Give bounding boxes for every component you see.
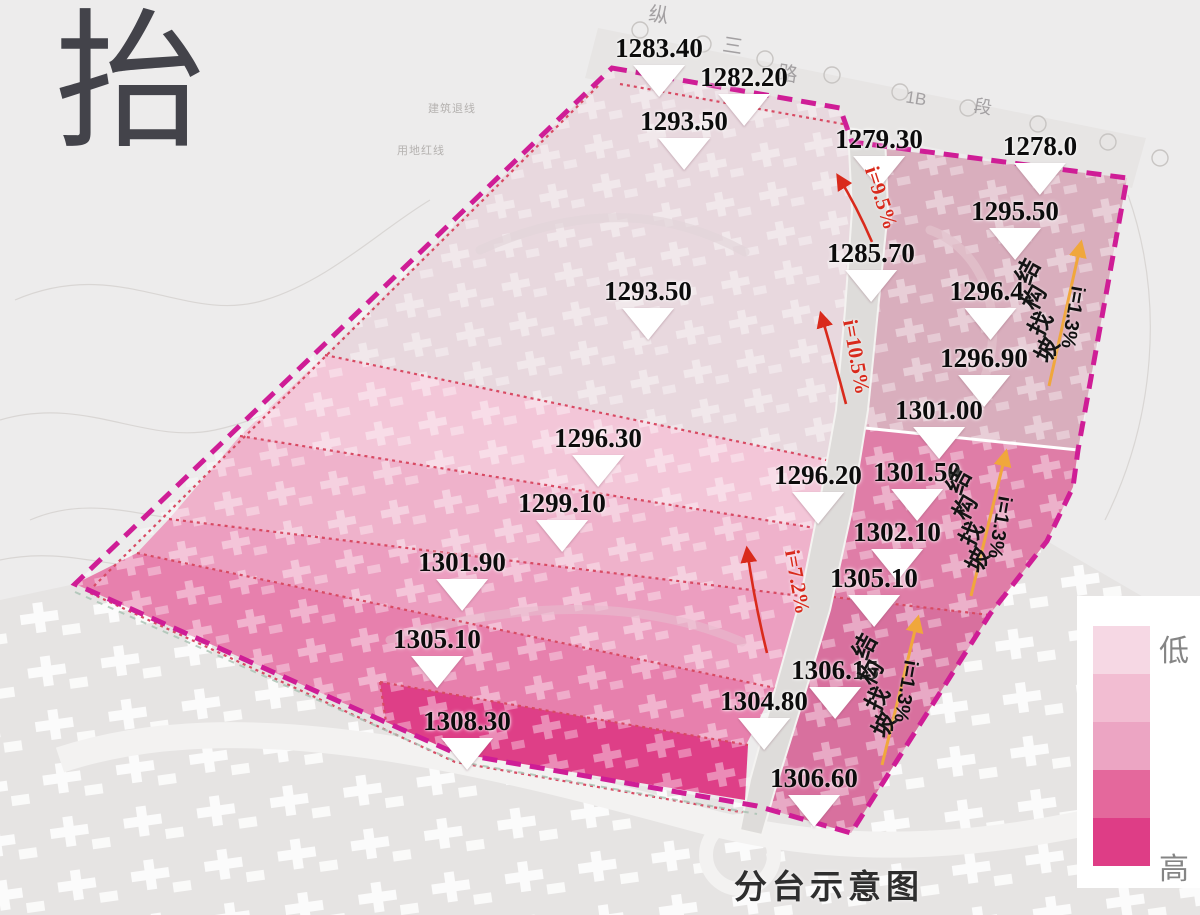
elevation-triangle-icon — [792, 492, 844, 524]
elevation-triangle-icon — [848, 595, 900, 627]
elevation-marker: 1305.10 — [393, 624, 481, 688]
elevation-marker: 1296.30 — [554, 423, 642, 487]
elevation-triangle-icon — [809, 687, 861, 719]
elevation-marker: 1306.60 — [770, 763, 858, 827]
elevation-marker: 1295.50 — [971, 196, 1059, 260]
diagram-title: 分台示意图 — [734, 860, 924, 908]
legend-swatch — [1093, 770, 1150, 818]
elevation-value: 1285.70 — [827, 238, 915, 269]
elevation-triangle-icon — [788, 795, 840, 827]
elevation-value: 1305.10 — [393, 624, 481, 655]
elevation-triangle-icon — [964, 308, 1016, 340]
elevation-marker: 1296.20 — [774, 460, 862, 524]
elevation-value: 1296.90 — [940, 343, 1028, 374]
elevation-marker: 1301.00 — [895, 395, 983, 459]
site-note-label: 建筑退线 — [428, 100, 476, 116]
elevation-value: 1299.10 — [518, 488, 606, 519]
big-character: 抬 — [55, 8, 205, 158]
elevation-value: 1282.20 — [700, 62, 788, 93]
elevation-marker: 1283.40 — [615, 33, 703, 97]
elevation-triangle-icon — [1014, 163, 1066, 195]
elevation-triangle-icon — [913, 427, 965, 459]
elevation-triangle-icon — [633, 65, 685, 97]
elevation-marker: 1299.10 — [518, 488, 606, 552]
site-note-label: 用地红线 — [397, 142, 445, 158]
elevation-value: 1296.20 — [774, 460, 862, 491]
elevation-value: 1296.30 — [554, 423, 642, 454]
elevation-marker: 1308.30 — [423, 706, 511, 770]
elevation-value: 1304.80 — [720, 686, 808, 717]
elevation-value: 1278.0 — [1003, 131, 1077, 162]
elevation-marker: 1305.10 — [830, 563, 918, 627]
elevation-marker: 1293.50 — [604, 276, 692, 340]
terrace-plan-canvas: 抬 纵三路1B段 建筑退线用地红线 1283.401282.201293.501… — [0, 0, 1200, 915]
elevation-value: 1305.10 — [830, 563, 918, 594]
elevation-value: 1293.50 — [640, 106, 728, 137]
elevation-marker: 1285.70 — [827, 238, 915, 302]
elevation-legend: 低 高 — [1077, 596, 1200, 888]
legend-swatch — [1093, 818, 1150, 866]
elevation-value: 1306.60 — [770, 763, 858, 794]
elevation-triangle-icon — [572, 455, 624, 487]
elevation-triangle-icon — [441, 738, 493, 770]
elevation-value: 1283.40 — [615, 33, 703, 64]
elevation-value: 1308.30 — [423, 706, 511, 737]
elevation-value: 1301.90 — [418, 547, 506, 578]
elevation-triangle-icon — [536, 520, 588, 552]
elevation-triangle-icon — [436, 579, 488, 611]
elevation-marker: 1278.0 — [1003, 131, 1077, 195]
elevation-value: 1293.50 — [604, 276, 692, 307]
legend-swatches — [1093, 626, 1150, 866]
road-name-label: 1B — [904, 87, 928, 110]
elevation-value: 1302.10 — [853, 517, 941, 548]
elevation-triangle-icon — [989, 228, 1041, 260]
elevation-triangle-icon — [411, 656, 463, 688]
elevation-triangle-icon — [622, 308, 674, 340]
elevation-triangle-icon — [658, 138, 710, 170]
elevation-value: 1279.30 — [835, 124, 923, 155]
elevation-marker: 1304.80 — [720, 686, 808, 750]
legend-swatch — [1093, 722, 1150, 770]
elevation-value: 1301.00 — [895, 395, 983, 426]
legend-swatch — [1093, 626, 1150, 674]
elevation-value: 1295.50 — [971, 196, 1059, 227]
elevation-triangle-icon — [738, 718, 790, 750]
legend-high-label: 高 — [1159, 844, 1189, 888]
legend-low-label: 低 — [1159, 626, 1189, 670]
elevation-triangle-icon — [845, 270, 897, 302]
legend-swatch — [1093, 674, 1150, 722]
elevation-marker: 1301.90 — [418, 547, 506, 611]
elevation-marker: 1293.50 — [640, 106, 728, 170]
